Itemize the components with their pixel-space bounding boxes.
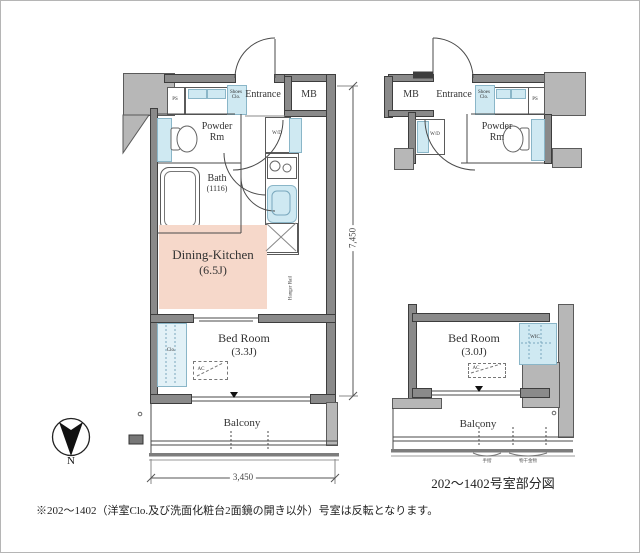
washbasin-mirror-left-main — [188, 89, 207, 99]
balcony-label-main: Balcony — [224, 418, 261, 430]
right-cut-mass-left — [395, 149, 413, 169]
bed-room-size-label-main: (3.3J) — [231, 347, 256, 359]
right-bed-bottom-wall-right — [521, 389, 549, 397]
ps-label-main: PS — [172, 97, 178, 102]
plan-linework — [1, 1, 639, 552]
compass-north-label: N — [67, 456, 75, 468]
dim-width-label: 3,450 — [230, 473, 256, 482]
main-bottom-wall-left — [151, 395, 191, 403]
entrance-label-right: Entrance — [436, 90, 472, 101]
bath-size-label-main: (1116) — [207, 185, 228, 193]
closet-label-main: Clo. — [167, 348, 175, 353]
bed-room-label-main: Bed Room — [218, 332, 270, 345]
refrigerator-space-main — [266, 223, 298, 253]
main-balcony-right-mass — [327, 403, 337, 445]
main-divider-wall-left — [151, 315, 193, 322]
main-mb-wall-left — [285, 77, 291, 115]
main-divider-wall-right — [259, 315, 335, 322]
washer-blue-right — [417, 121, 429, 153]
right-cut-mass-right — [553, 149, 581, 167]
window-marker-main — [230, 392, 238, 398]
linen-cabinet-main — [289, 118, 302, 153]
ac-label-main: AC — [198, 367, 205, 372]
bathtub-inner-main — [164, 171, 196, 227]
balcony-micro-label-1: 手摺 — [483, 459, 492, 464]
stove-main — [267, 157, 297, 179]
entrance-label-main: Entrance — [245, 90, 281, 101]
vanity-cabinet-right — [531, 119, 545, 161]
entrance-door-arc-main — [235, 38, 275, 78]
window-marker-right — [475, 386, 483, 392]
main-mb-wall-bottom — [285, 111, 333, 116]
shoes-closet-label-right: Shoes Clo. — [476, 90, 492, 101]
balcony-label-right: Balcony — [460, 419, 497, 431]
right-balcony-left-mass — [393, 399, 441, 408]
bed-room-size-label-right: (3.0J) — [461, 347, 486, 359]
right-plan-caption: 202〜1402号室部分図 — [431, 477, 555, 491]
main-top-wall-right — [275, 75, 285, 82]
right-top-wall — [473, 75, 547, 82]
compass-circle — [53, 419, 90, 456]
ac-label-right: AC — [473, 366, 480, 371]
main-right-wall — [327, 75, 335, 405]
right-bed-bottom-wall-left — [413, 389, 431, 397]
right-powder-right-wall — [545, 115, 551, 163]
right-mb-wall-top — [389, 75, 433, 81]
bed-room-label-right: Bed Room — [448, 332, 500, 345]
right-bed-column-mass — [523, 363, 559, 407]
mb-label-main: MB — [301, 90, 317, 101]
powder-room-label-main: Powder Rm — [194, 122, 240, 143]
washer-dryer-label-right: W/D — [430, 132, 440, 137]
compass-north-arrow-icon — [59, 422, 83, 456]
bath-label-main: Bath — [208, 174, 227, 185]
toilet-tank-main — [171, 128, 180, 150]
right-bed-right-mass — [559, 305, 573, 437]
washbasin-mirror-right-plan — [496, 89, 511, 99]
neighbor-wedge — [123, 115, 149, 153]
entrance-door-arc-right — [433, 38, 473, 78]
wic-right — [519, 323, 557, 365]
toilet-tank-right — [520, 128, 529, 150]
shoes-closet-label-main: Shoes Clo. — [228, 90, 244, 101]
right-bed-top-wall — [413, 314, 549, 321]
kitchen-sink-main — [267, 185, 297, 223]
washbasin-mirror-right-main — [207, 89, 226, 99]
dining-kitchen-label: Dining-Kitchen — [172, 248, 254, 262]
ps-label-right: PS — [532, 97, 538, 102]
powder-room-label-right: Powder Rm — [474, 122, 520, 143]
footnote: ※202〜1402（洋室Clo.及び洗面化粧台2面鏡の開き以外）号室は反転となり… — [36, 502, 438, 518]
hanger-rail-label-main: Hanger Rail — [288, 276, 293, 300]
vanity-cabinet-main — [157, 118, 172, 162]
dk-door-arc-main — [224, 153, 266, 195]
balcony-micro-label-2: 物干金物 — [519, 459, 537, 464]
washbasin-mirror-right-plan-2 — [511, 89, 526, 99]
washer-dryer-label-main: W/D — [272, 131, 282, 136]
balcony-drain-main — [129, 435, 143, 444]
mb-label-right: MB — [403, 90, 419, 101]
floor-plan-page: PS Shoes Clo. Entrance MB Powder Rm W/D … — [0, 0, 640, 553]
closet-main — [157, 323, 187, 387]
main-mb-wall-top — [285, 75, 333, 81]
main-bottom-wall-right — [311, 395, 335, 403]
wic-label-right: WIC — [530, 335, 540, 340]
main-top-wall-left — [165, 75, 235, 82]
dining-kitchen-size-label: (6.5J) — [199, 264, 227, 277]
neighbor-block-top-right — [545, 73, 585, 115]
dim-height-label: 7,450 — [348, 225, 357, 251]
